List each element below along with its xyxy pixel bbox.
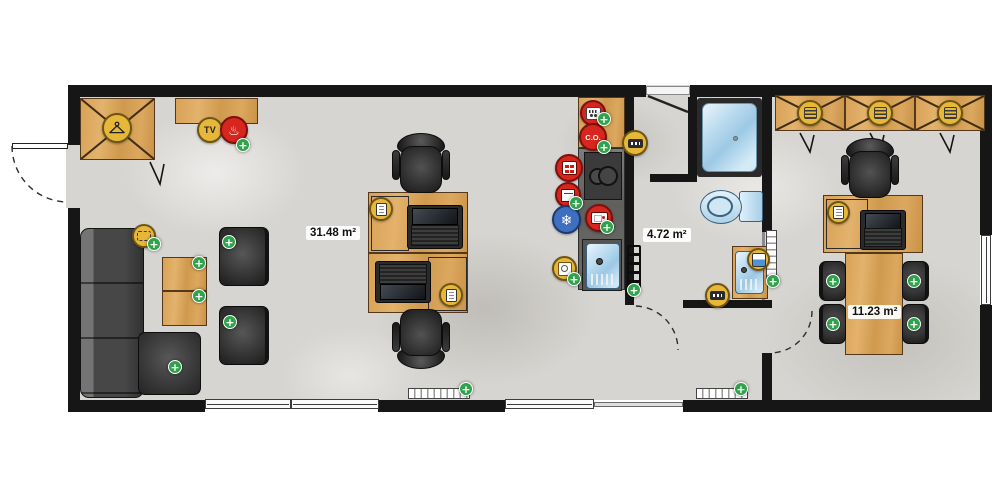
add-badge[interactable]: + bbox=[147, 237, 161, 251]
add-badge[interactable]: + bbox=[236, 138, 250, 152]
water-heater-glyph bbox=[752, 253, 766, 267]
hanger-icon[interactable] bbox=[102, 113, 132, 143]
co-label: C.O. bbox=[585, 133, 600, 142]
shelves-icon[interactable] bbox=[797, 100, 823, 126]
office-chair[interactable] bbox=[394, 306, 448, 369]
panel-glyph bbox=[710, 291, 725, 300]
add-badge[interactable]: + bbox=[826, 274, 840, 288]
window-bottom-1[interactable] bbox=[205, 399, 291, 409]
entrance-door-top-frame[interactable] bbox=[646, 86, 690, 95]
stove-icon[interactable] bbox=[555, 154, 583, 182]
add-badge[interactable]: + bbox=[222, 235, 236, 249]
add-badge[interactable]: + bbox=[597, 140, 611, 154]
add-badge[interactable]: + bbox=[192, 289, 206, 303]
wall-bottom-c bbox=[683, 400, 992, 412]
faucet-icon bbox=[596, 258, 603, 265]
add-badge[interactable]: + bbox=[627, 283, 641, 297]
add-badge[interactable]: + bbox=[826, 317, 840, 331]
wall-right-lower bbox=[980, 305, 992, 412]
wall-left-lower bbox=[68, 208, 80, 412]
add-badge[interactable]: + bbox=[223, 315, 237, 329]
thermostat-panel-icon[interactable] bbox=[705, 283, 730, 308]
wall-bottom-a bbox=[68, 400, 205, 412]
shelf-glyph bbox=[874, 107, 887, 119]
shelf-glyph bbox=[804, 107, 817, 119]
electrical-panel-icon[interactable] bbox=[622, 130, 648, 156]
wall-shower-left bbox=[688, 97, 697, 182]
panel-glyph bbox=[628, 139, 643, 148]
corner-sofa-long[interactable] bbox=[80, 228, 144, 398]
faucet-icon bbox=[741, 267, 747, 273]
add-badge[interactable]: + bbox=[907, 274, 921, 288]
door-swing-left bbox=[12, 146, 68, 202]
document-icon[interactable] bbox=[369, 197, 393, 221]
window-right[interactable] bbox=[981, 235, 991, 305]
wall-bottom-b bbox=[378, 400, 505, 412]
snowflake-glyph: ❄ bbox=[561, 213, 573, 227]
doc-glyph bbox=[446, 289, 457, 302]
area-label-hallway: 4.72 m² bbox=[643, 228, 691, 242]
water-heater-icon[interactable] bbox=[747, 248, 770, 271]
entrance-door-left-leaf[interactable] bbox=[12, 143, 68, 149]
add-badge[interactable]: + bbox=[168, 360, 182, 374]
window-bottom-2[interactable] bbox=[291, 399, 379, 409]
area-label-main-room: 31.48 m² bbox=[306, 226, 360, 240]
laptop[interactable] bbox=[375, 261, 431, 303]
stove-glyph bbox=[562, 161, 577, 175]
meeting-table[interactable] bbox=[845, 253, 903, 355]
tv-label: TV bbox=[204, 125, 216, 135]
add-badge[interactable]: + bbox=[569, 196, 583, 210]
wall-left-upper bbox=[68, 85, 80, 145]
add-badge[interactable]: + bbox=[567, 272, 581, 286]
wall-shower-bottom bbox=[650, 174, 697, 182]
floor-plan: TV ♨ + + + + + + + 31.48 m² + C.O. + bbox=[0, 0, 1000, 500]
shower[interactable] bbox=[697, 98, 762, 177]
toilet[interactable] bbox=[700, 190, 764, 225]
add-badge[interactable]: + bbox=[907, 317, 921, 331]
kitchen-sink[interactable] bbox=[582, 239, 622, 291]
shelves-icon[interactable] bbox=[867, 100, 893, 126]
wall-top-left bbox=[68, 85, 646, 97]
laptop[interactable] bbox=[407, 205, 463, 249]
shelf-glyph bbox=[944, 107, 957, 119]
cooktop[interactable] bbox=[584, 152, 622, 200]
heat-glyph: ♨ bbox=[228, 124, 240, 137]
office-chair[interactable] bbox=[843, 138, 897, 201]
add-badge[interactable]: + bbox=[766, 274, 780, 288]
wall-hall-right bbox=[762, 353, 772, 400]
add-badge[interactable]: + bbox=[734, 382, 748, 396]
doc-glyph bbox=[833, 206, 844, 219]
document-icon[interactable] bbox=[827, 201, 850, 224]
shelves-icon[interactable] bbox=[937, 100, 963, 126]
add-badge[interactable]: + bbox=[597, 112, 611, 126]
office-chair[interactable] bbox=[394, 133, 448, 196]
document-icon[interactable] bbox=[439, 283, 463, 307]
add-badge[interactable]: + bbox=[192, 256, 206, 270]
laptop[interactable] bbox=[860, 210, 906, 250]
area-label-small-room: 11.23 m² bbox=[848, 305, 901, 319]
add-badge[interactable]: + bbox=[459, 382, 473, 396]
shower-drain-icon bbox=[733, 136, 738, 141]
doc-glyph bbox=[376, 203, 387, 216]
window-bottom-3[interactable] bbox=[505, 399, 594, 409]
add-badge[interactable]: + bbox=[600, 220, 614, 234]
window-bottom-4[interactable] bbox=[594, 402, 683, 407]
